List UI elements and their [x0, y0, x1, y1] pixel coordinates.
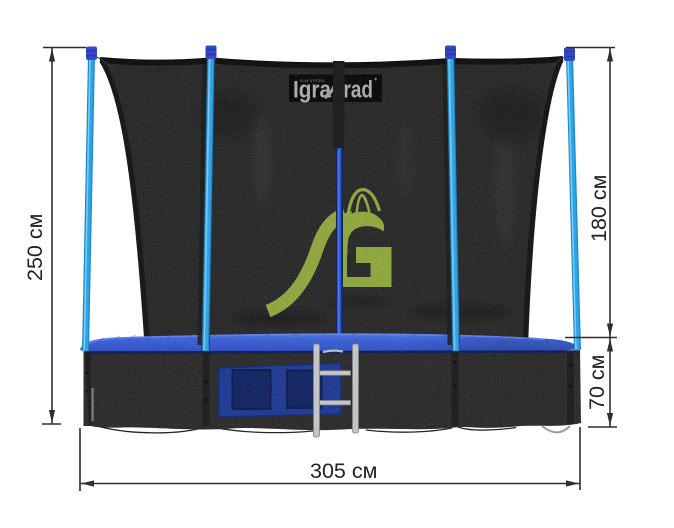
svg-text:305 см: 305 см — [310, 459, 377, 483]
svg-text:180 см: 180 см — [587, 175, 611, 242]
svg-text:70 см: 70 см — [585, 355, 609, 410]
svg-text:250 см: 250 см — [23, 214, 47, 281]
